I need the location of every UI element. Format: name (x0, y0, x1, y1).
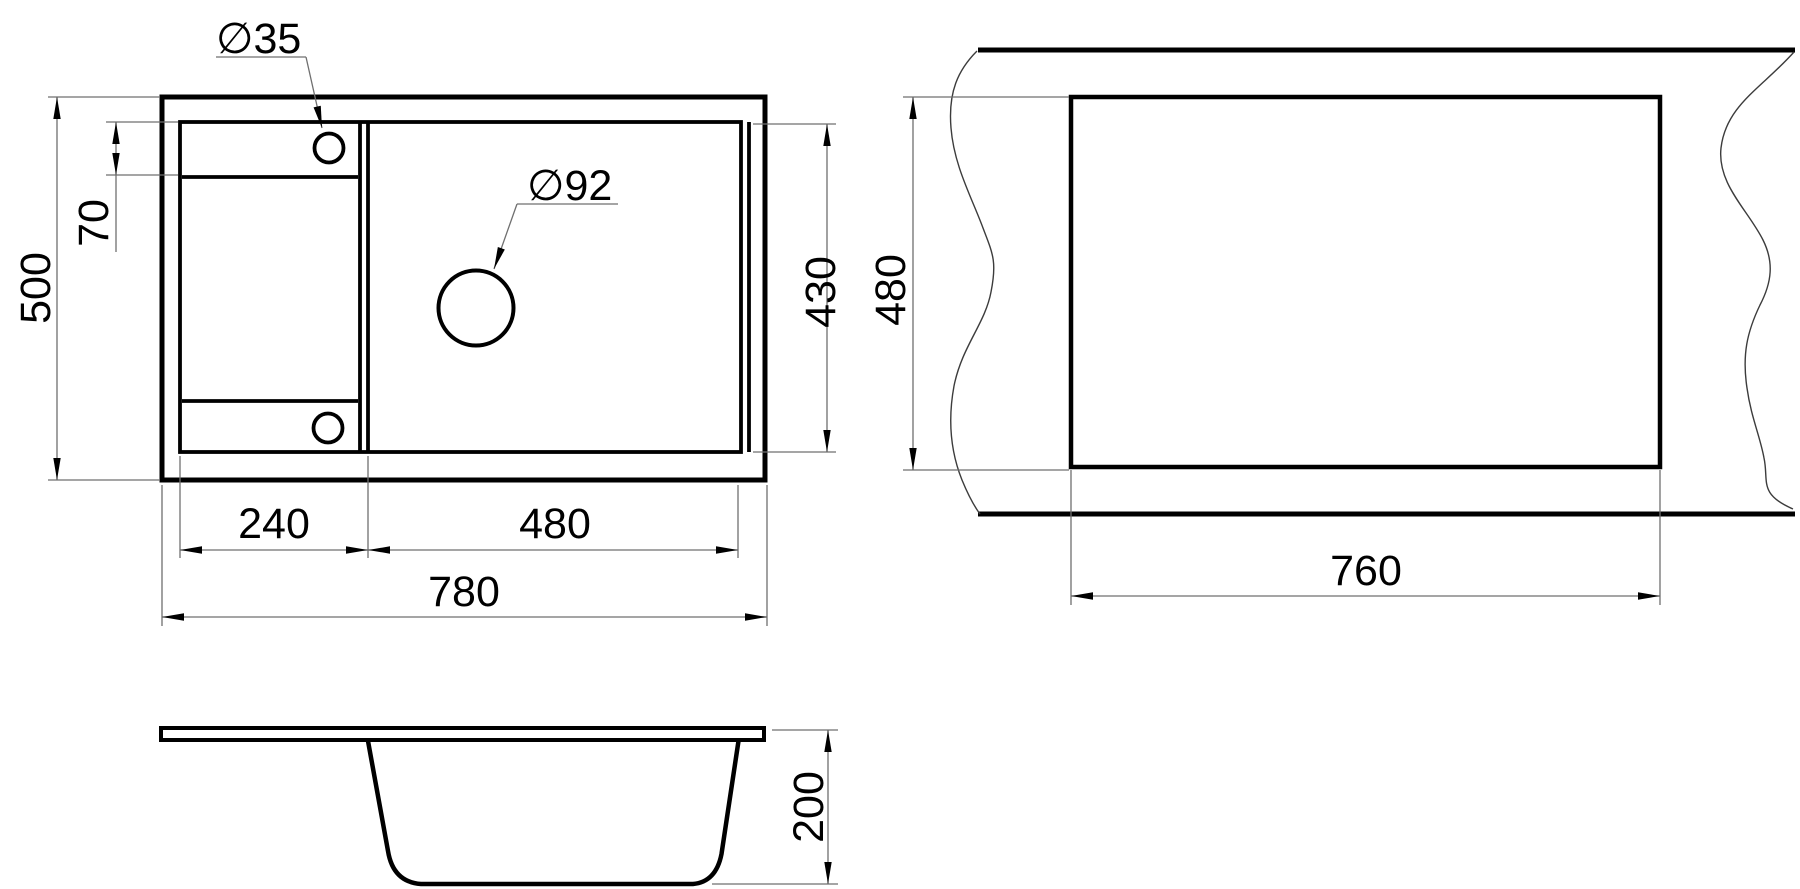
cutout-rect (1071, 97, 1660, 467)
plan-view (162, 97, 765, 480)
technical-drawing-page: ∅35 ∅92 500 70 430 240 (0, 0, 1800, 889)
dim-480-cutout: 480 (867, 97, 1069, 470)
plan-outer-rect (162, 97, 765, 480)
dim-430-text: 430 (797, 256, 845, 328)
dia92-label: ∅92 (527, 162, 612, 210)
tap-hole-top (315, 134, 344, 163)
dia92-leader-arrow (494, 204, 517, 269)
dia35-leader-arrow (306, 57, 322, 128)
cutout-view (950, 50, 1795, 514)
dim-240: 240 (180, 456, 368, 558)
dim-500: 500 (12, 97, 160, 480)
dim-780-text: 780 (428, 568, 500, 616)
side-bowl-profile (368, 741, 739, 884)
dim-480-plan-text: 480 (519, 500, 591, 548)
dim-480-cutout-text: 480 (867, 254, 915, 326)
side-view (160, 726, 765, 884)
dim-760: 760 (1071, 470, 1660, 605)
leader-dia35: ∅35 (216, 15, 322, 128)
dim-200-text: 200 (785, 771, 833, 843)
break-line-right (1721, 52, 1794, 509)
leader-dia92: ∅92 (494, 162, 618, 269)
dim-760-text: 760 (1330, 547, 1402, 595)
sink-drawing-canvas: ∅35 ∅92 500 70 430 240 (0, 0, 1800, 889)
dim-240-text: 240 (238, 500, 310, 548)
drain-hole (439, 271, 514, 346)
break-line-left (950, 51, 993, 514)
dim-70-text: 70 (70, 199, 118, 247)
dia35-label: ∅35 (216, 15, 301, 63)
tap-hole-bottom (314, 414, 343, 443)
dim-500-text: 500 (12, 252, 60, 324)
dim-200: 200 (712, 730, 838, 884)
dim-480-plan: 480 (368, 485, 738, 558)
